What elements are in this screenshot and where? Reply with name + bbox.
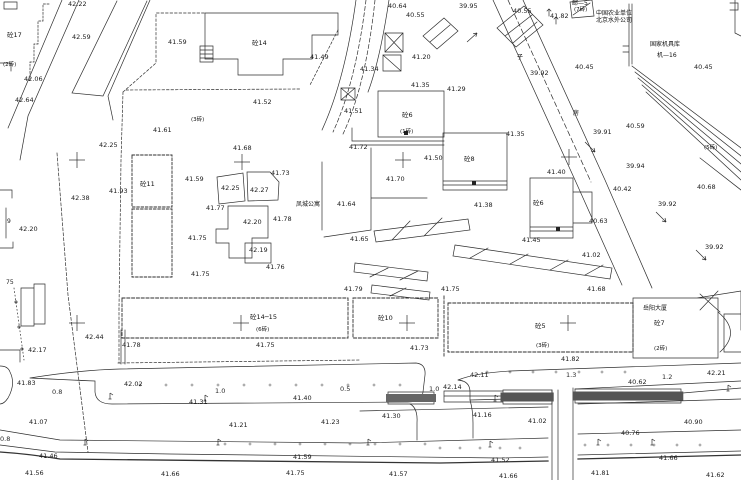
storey-note-label: (3砖) (536, 344, 549, 350)
spot-elevation: 41.46 (39, 453, 58, 460)
spot-elevation: 42.25 (221, 185, 240, 192)
spot-elevation: 41.82 (550, 13, 569, 20)
building-label: 砼17 (7, 32, 22, 39)
spot-elevation: 39.92 (530, 70, 549, 77)
place-name-label: 房 (573, 111, 579, 117)
spot-elevation: 41.77 (206, 205, 225, 212)
spot-elevation: 41.35 (411, 82, 430, 89)
spot-elevation: 41.20 (412, 54, 431, 61)
spot-elevation: 40.62 (628, 379, 647, 386)
spot-elevation: 41.65 (350, 236, 369, 243)
spot-elevation: 41.40 (547, 169, 566, 176)
building-label: 砼6 (533, 200, 544, 207)
spot-elevation: 41.66 (499, 473, 518, 480)
spot-elevation: 42.27 (250, 187, 269, 194)
spot-elevation: 41.59 (168, 39, 187, 46)
site-plan-map: 凤城公寓岳阳大厦中国农业单位北京水外公司国家机具库机—16邮—5子房砼17砼14… (0, 0, 741, 480)
building-label: 砼8 (464, 156, 475, 163)
spot-elevation: 42.64 (15, 97, 34, 104)
spot-elevation: 40.55 (406, 12, 425, 19)
spot-elevation: 41.61 (153, 127, 172, 134)
place-name-label: 北京水外公司 (596, 18, 632, 24)
spot-elevation: 40.45 (694, 64, 713, 71)
road-width-label: 1.0 (429, 386, 439, 393)
road-width-label: 1.0 (215, 388, 225, 395)
spot-elevation: 42.02 (124, 381, 143, 388)
building-label: 砼11 (140, 181, 155, 188)
spot-elevation: 41.52 (253, 99, 272, 106)
spot-elevation: 41.70 (386, 176, 405, 183)
spot-elevation: 41.83 (17, 380, 36, 387)
spot-elevation: 41.82 (561, 356, 580, 363)
spot-elevation: 42.21 (707, 370, 726, 377)
spot-elevation: 41.30 (382, 413, 401, 420)
spot-elevation: 39.95 (459, 3, 478, 10)
spot-elevation: 40.68 (697, 184, 716, 191)
spot-elevation: 42.22 (68, 1, 87, 8)
spot-elevation: 41.40 (293, 395, 312, 402)
spot-elevation: 39.91 (593, 129, 612, 136)
spot-elevation: 41.16 (473, 412, 492, 419)
spot-elevation: 40.59 (626, 123, 645, 130)
spot-elevation: 42.17 (28, 347, 47, 354)
spot-elevation: 41.34 (360, 66, 379, 73)
spot-elevation: 42.20 (243, 219, 262, 226)
spot-elevation: 41.02 (582, 252, 601, 259)
spot-elevation: 41.50 (424, 155, 443, 162)
storey-note-label: (1砖) (400, 130, 413, 136)
spot-elevation: 40.45 (575, 64, 594, 71)
road-width-label: 0.5 (340, 386, 350, 393)
storey-note-label: (3砖) (191, 118, 204, 124)
spot-elevation: 42.06 (24, 76, 43, 83)
building-label: 砼10 (378, 315, 393, 322)
spot-elevation: 42.14 (443, 384, 462, 391)
spot-elevation: 41.75 (256, 342, 275, 349)
spot-elevation: 41.23 (321, 419, 340, 426)
building-label: 砼14 (252, 40, 267, 47)
spot-elevation: 41.49 (310, 54, 329, 61)
storey-note-label: (7砖) (574, 8, 587, 14)
spot-elevation: 41.78 (273, 216, 292, 223)
spot-elevation: 41.66 (659, 455, 678, 462)
spot-elevation: 42.59 (72, 34, 91, 41)
place-name-label: 国家机具库 (650, 42, 680, 48)
spot-elevation: 41.64 (337, 201, 356, 208)
spot-elevation: 42.11 (470, 372, 489, 379)
spot-elevation: 39.92 (658, 201, 677, 208)
spot-elevation: 41.59 (185, 176, 204, 183)
spot-elevation: 40.42 (613, 186, 632, 193)
misc-label: 75 (6, 280, 14, 286)
spot-elevation: 42.19 (249, 247, 268, 254)
spot-elevation: 41.51 (344, 108, 363, 115)
building-label: 砼7 (654, 320, 665, 327)
spot-elevation: 41.02 (528, 418, 547, 425)
spot-elevation: 41.93 (109, 188, 128, 195)
spot-elevation: 42.38 (71, 195, 90, 202)
spot-elevation: 41.75 (441, 286, 460, 293)
spot-elevation: 40.90 (684, 419, 703, 426)
place-name-label: 凤城公寓 (296, 202, 320, 208)
spot-elevation: 39.92 (705, 244, 724, 251)
spot-elevation: 41.75 (191, 271, 210, 278)
place-name-label: 岳阳大厦 (643, 306, 667, 312)
spot-elevation: 41.76 (266, 264, 285, 271)
spot-elevation: 41.31 (189, 399, 208, 406)
spot-elevation: 41.78 (122, 342, 141, 349)
storey-note-label: (5砖) (704, 146, 717, 152)
spot-elevation: 41.75 (286, 470, 305, 477)
spot-elevation: 40.63 (589, 218, 608, 225)
road-width-label: 1.2 (662, 374, 672, 381)
spot-elevation: 40.64 (388, 3, 407, 10)
spot-elevation: 41.38 (474, 202, 493, 209)
spot-elevation: 41.59 (293, 454, 312, 461)
spot-elevation: 41.07 (29, 419, 48, 426)
storey-note-label: (2砖) (3, 63, 16, 69)
spot-elevation: 41.57 (389, 471, 408, 478)
spot-elevation: 41.66 (161, 471, 180, 478)
spot-elevation: 41.52 (491, 457, 510, 464)
spot-elevation: 41.81 (591, 470, 610, 477)
spot-elevation: 41.35 (506, 131, 525, 138)
spot-elevation: 41.29 (447, 86, 466, 93)
map-labels-layer: 凤城公寓岳阳大厦中国农业单位北京水外公司国家机具库机—16邮—5子房砼17砼14… (0, 0, 741, 480)
storey-note-label: (2砖) (654, 347, 667, 353)
spot-elevation: 42.25 (99, 142, 118, 149)
spot-elevation: 39.94 (626, 163, 645, 170)
spot-elevation: 41.68 (233, 145, 252, 152)
spot-elevation: 41.75 (188, 235, 207, 242)
building-label: 砼6 (402, 112, 413, 119)
spot-elevation: 42.20 (19, 226, 38, 233)
building-label: 砼14─15 (250, 314, 277, 321)
spot-elevation: 41.79 (344, 286, 363, 293)
spot-elevation: 42.44 (85, 334, 104, 341)
road-width-label: 0.8 (52, 389, 62, 396)
road-width-label: 1.3 (566, 372, 576, 379)
spot-elevation: 40.55 (513, 8, 532, 15)
building-label: 砼5 (535, 323, 546, 330)
spot-elevation: 41.72 (349, 144, 368, 151)
spot-elevation: 41.45 (522, 237, 541, 244)
place-name-label: 机—16 (657, 53, 677, 59)
spot-elevation: 41.62 (706, 472, 725, 479)
spot-elevation: 41.21 (229, 422, 248, 429)
spot-elevation: 41.56 (25, 470, 44, 477)
spot-elevation: 41.73 (271, 170, 290, 177)
road-width-label: 0.8 (0, 436, 10, 443)
spot-elevation: 40.76 (621, 430, 640, 437)
spot-elevation: 41.73 (410, 345, 429, 352)
misc-label: 9 (7, 219, 11, 225)
storey-note-label: (6砖) (256, 328, 269, 334)
spot-elevation: 41.68 (587, 286, 606, 293)
place-name-label: 子 (517, 55, 523, 61)
